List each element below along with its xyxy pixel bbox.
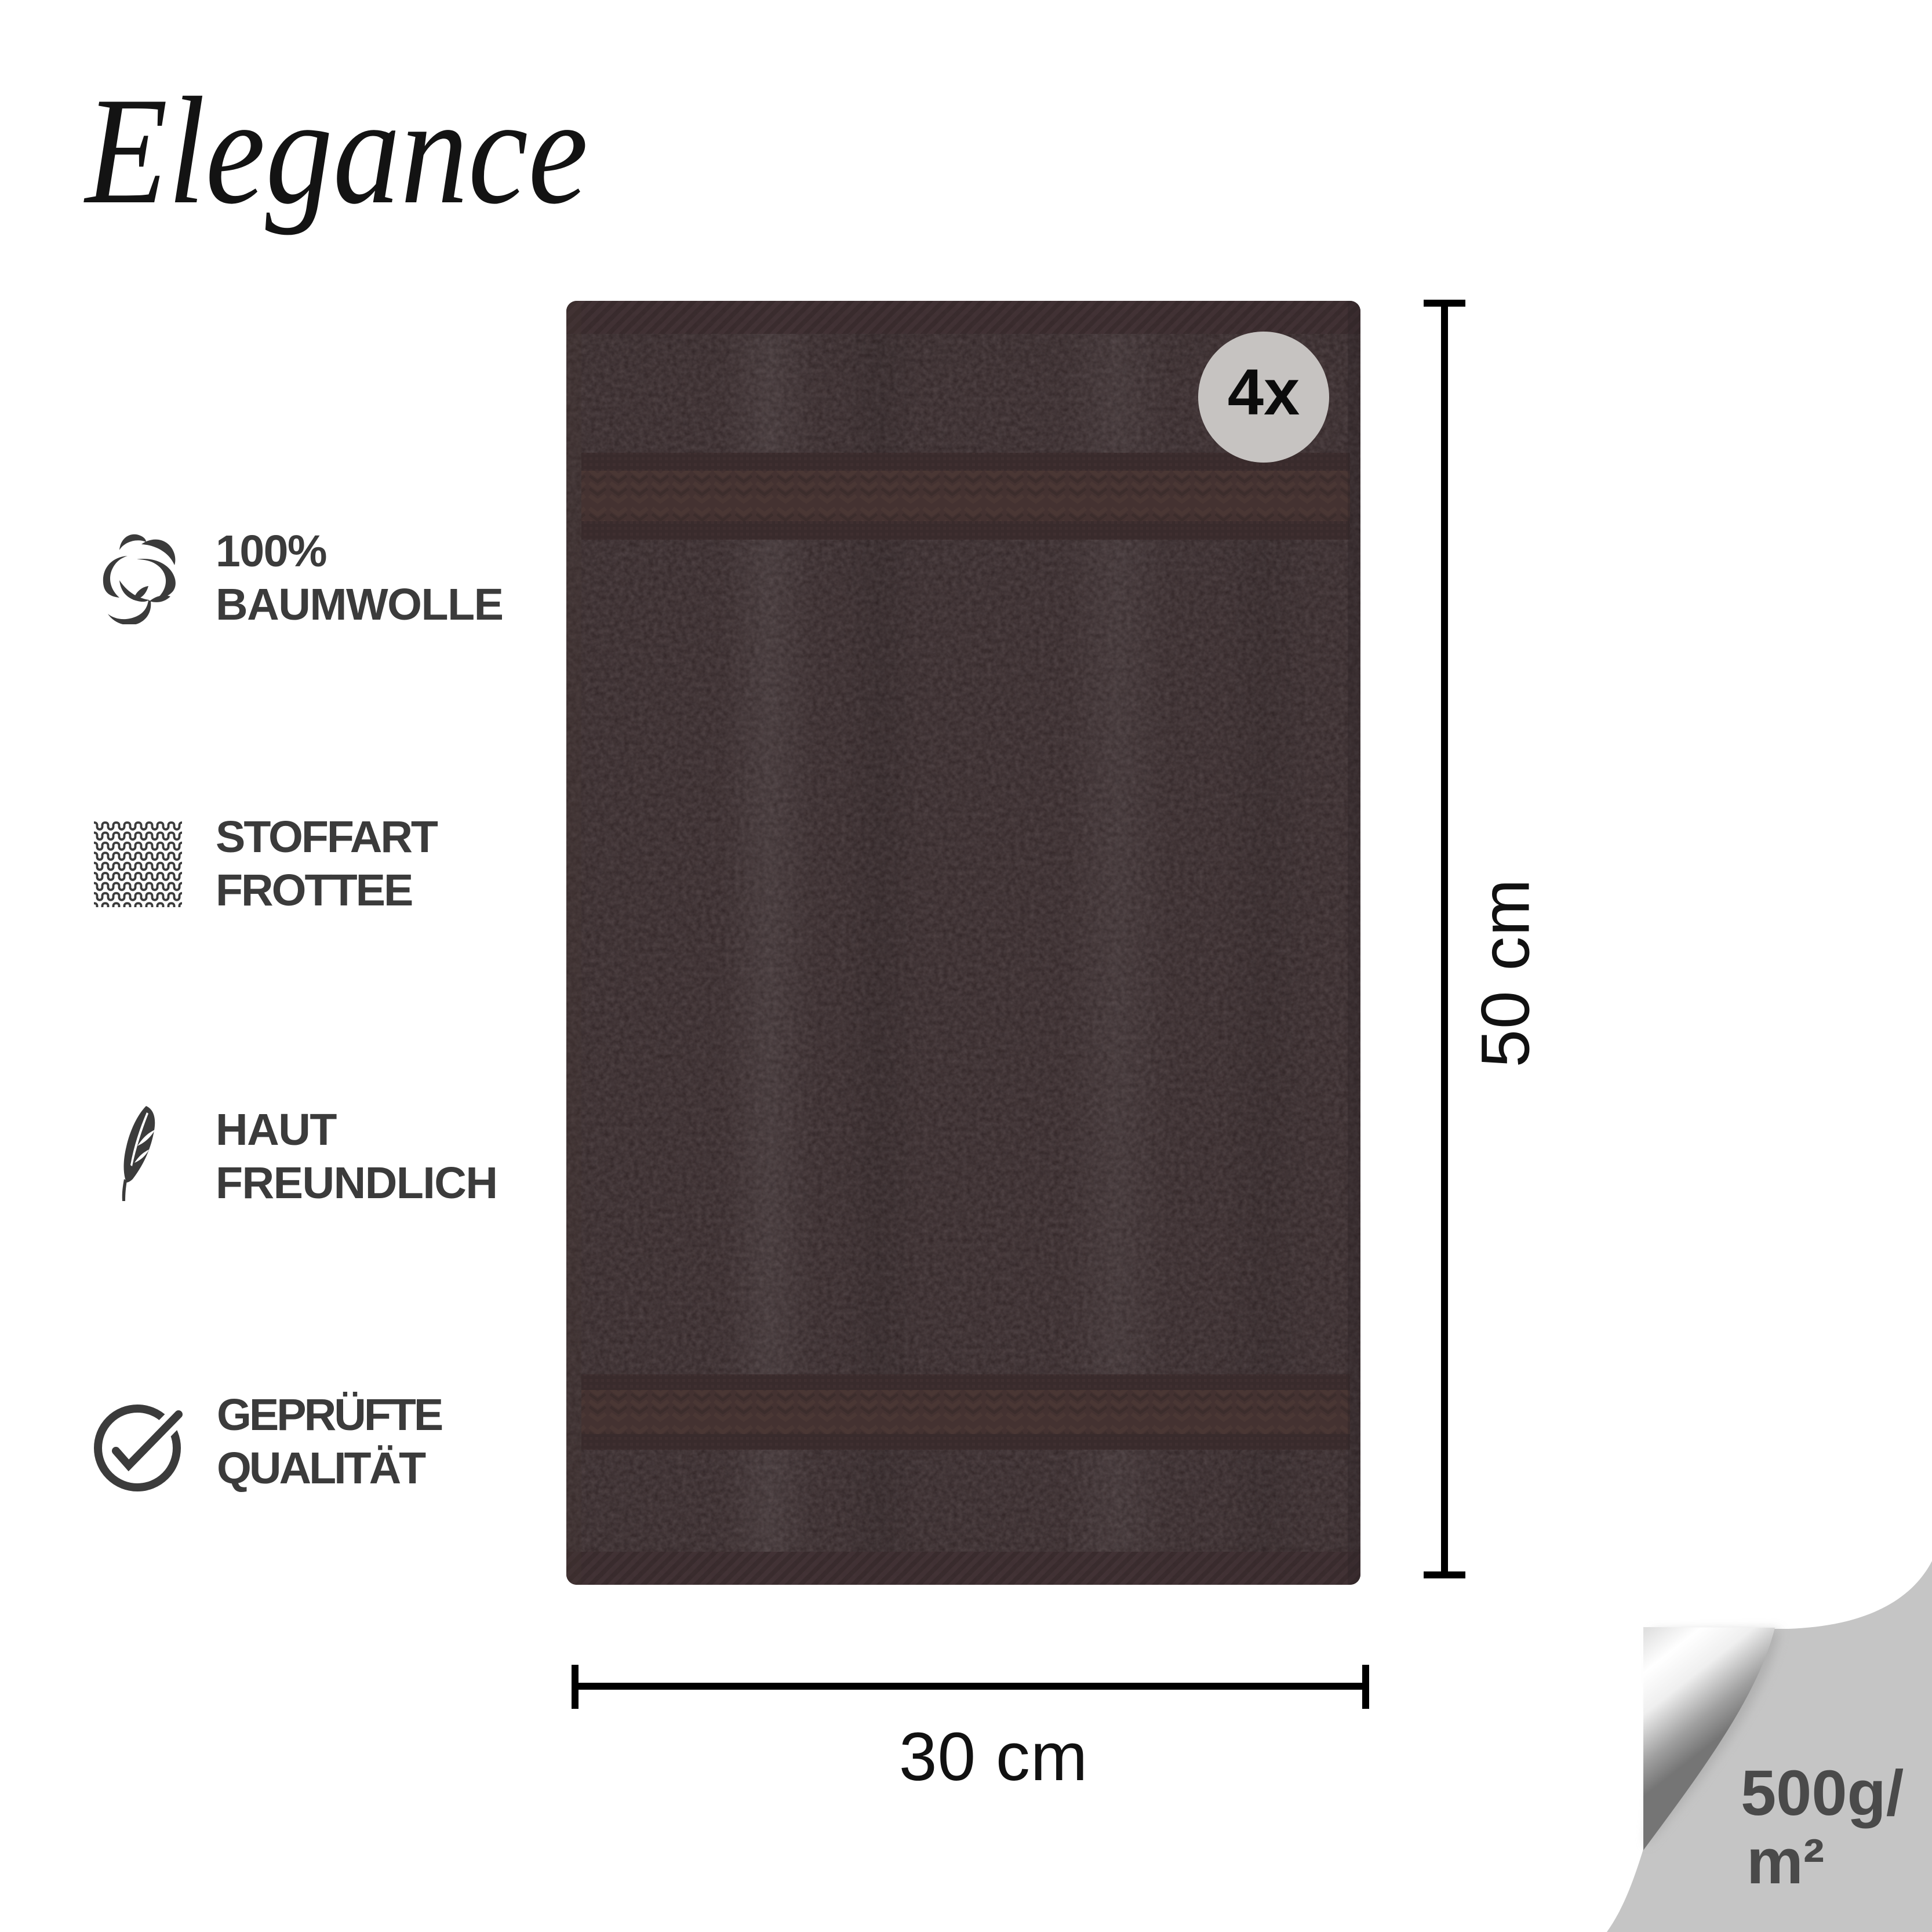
svg-text:m²: m²: [1747, 1826, 1824, 1897]
svg-text:500g/: 500g/: [1741, 1758, 1904, 1829]
